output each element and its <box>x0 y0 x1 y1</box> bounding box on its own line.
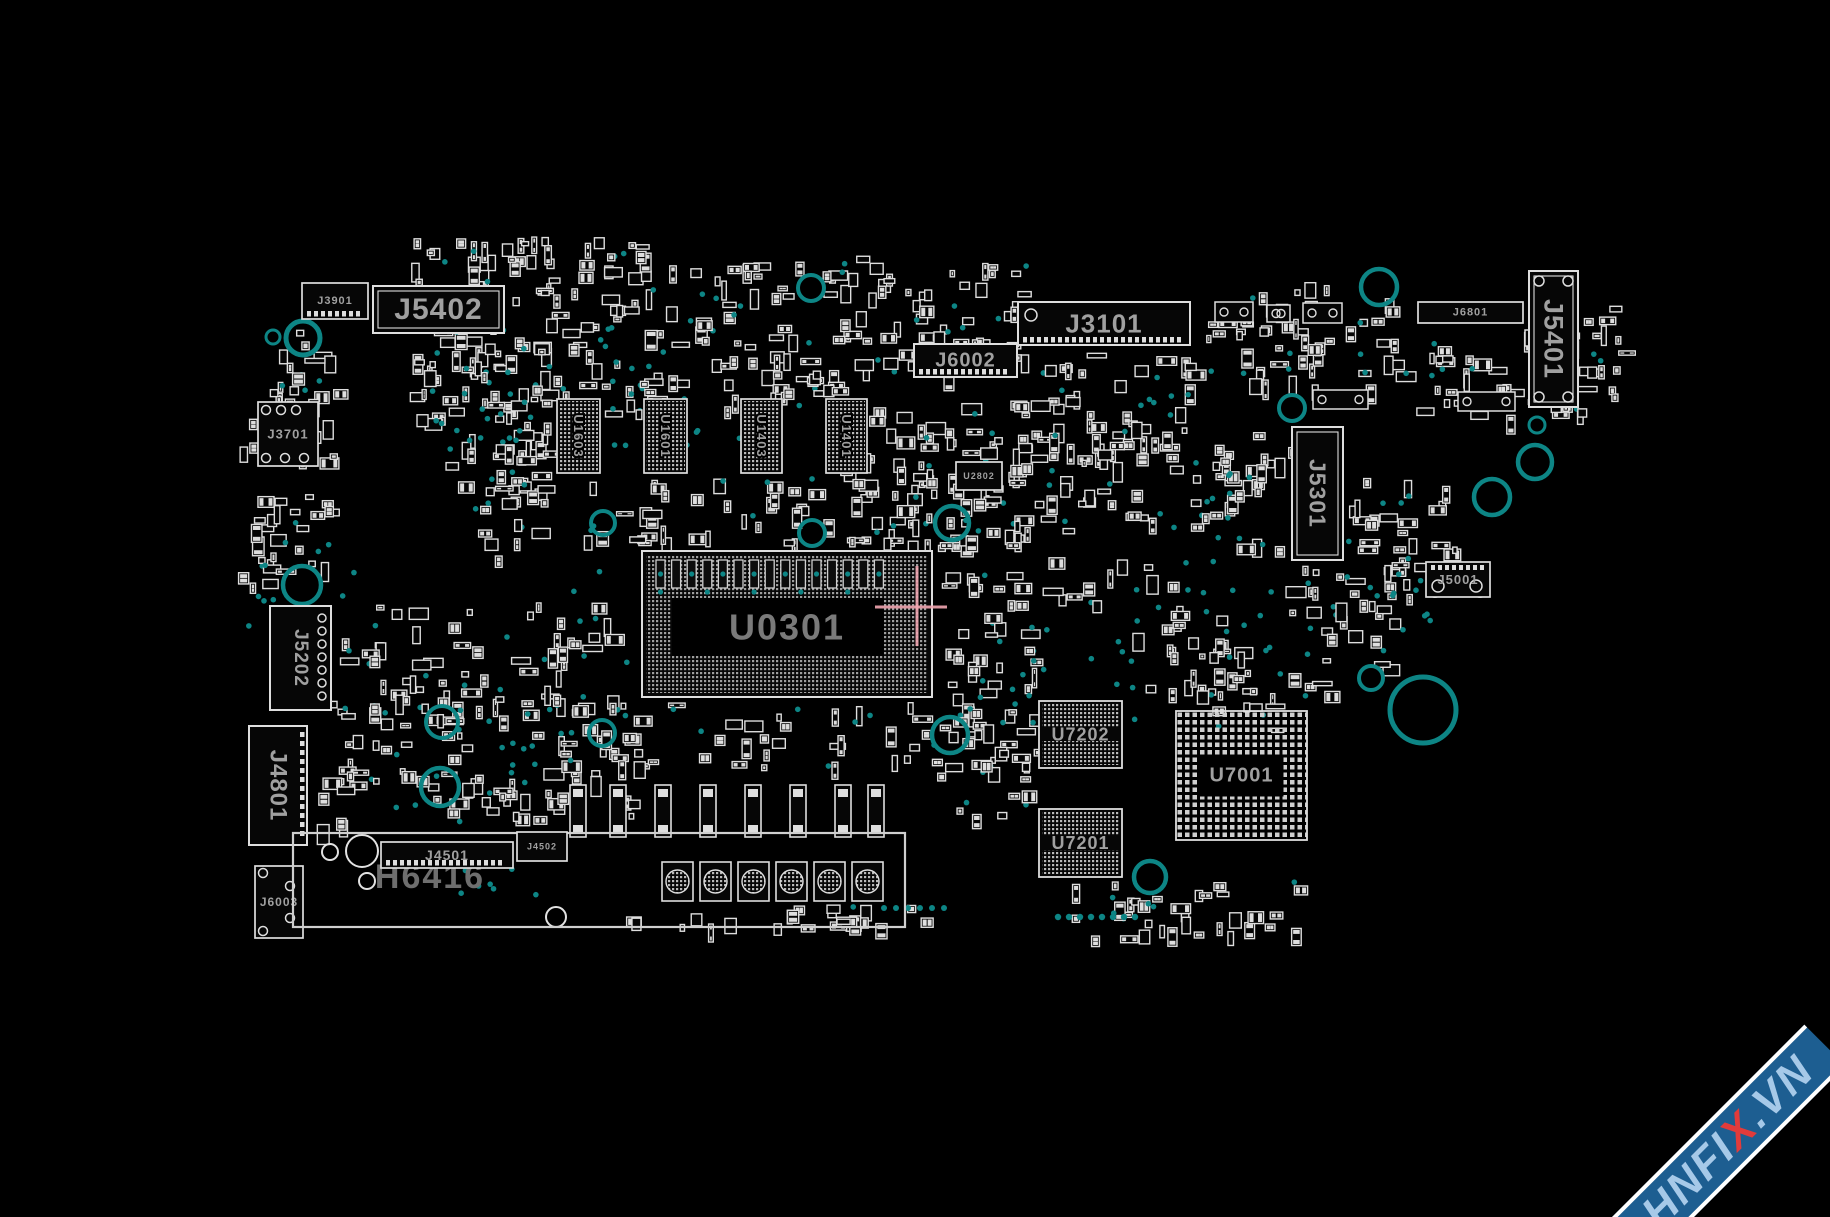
component-j5001[interactable]: J5001 <box>1426 562 1490 597</box>
component-u7201[interactable]: U7201 <box>1039 809 1122 877</box>
svg-text:U1601: U1601 <box>658 414 673 457</box>
boardview-stage: J3901J5402J3701U1603U1601U1403U1401J6002… <box>0 0 1830 1217</box>
component-u2802[interactable]: U2802 <box>956 462 1002 490</box>
svg-text:J6801: J6801 <box>1453 307 1489 319</box>
svg-text:U2802: U2802 <box>963 471 995 481</box>
svg-text:U1603: U1603 <box>571 414 586 457</box>
svg-text:J3901: J3901 <box>317 295 353 307</box>
component-j5401[interactable]: J5401 <box>1529 271 1578 407</box>
component-j5402[interactable]: J5402 <box>373 286 504 333</box>
component-j5202[interactable]: J5202 <box>270 606 331 710</box>
svg-text:U7001: U7001 <box>1210 765 1274 787</box>
svg-text:J5001: J5001 <box>1437 572 1478 587</box>
svg-text:J4502: J4502 <box>527 842 557 852</box>
board-diagram: J3901J5402J3701U1603U1601U1403U1401J6002… <box>0 0 1830 1217</box>
component-j3901[interactable]: J3901 <box>302 283 368 319</box>
svg-text:J3701: J3701 <box>267 427 308 442</box>
svg-text:J6002: J6002 <box>935 350 996 372</box>
component-j4801[interactable]: J4801 <box>249 726 307 845</box>
svg-text:U7202: U7202 <box>1051 725 1109 745</box>
component-u1401[interactable]: U1401 <box>826 399 867 473</box>
component-u7202[interactable]: U7202 <box>1039 701 1122 768</box>
svg-text:J4501: J4501 <box>425 847 469 863</box>
svg-text:J5402: J5402 <box>394 293 482 326</box>
svg-text:J5401: J5401 <box>1539 299 1569 379</box>
svg-text:U1401: U1401 <box>839 414 854 457</box>
component-j4501[interactable]: J4501 <box>381 842 513 868</box>
component-j6002[interactable]: J6002 <box>914 344 1017 377</box>
svg-text:J5202: J5202 <box>290 629 311 687</box>
svg-text:U7201: U7201 <box>1051 833 1109 853</box>
svg-text:U0301: U0301 <box>729 607 845 648</box>
svg-text:J3101: J3101 <box>1065 309 1142 339</box>
component-j3701[interactable]: J3701 <box>258 402 318 466</box>
svg-text:J5301: J5301 <box>1305 459 1331 528</box>
svg-text:U1403: U1403 <box>754 414 769 457</box>
component-u0301[interactable]: U0301 <box>642 551 932 697</box>
component-j3101[interactable]: J3101 <box>1018 302 1190 345</box>
component-u1403[interactable]: U1403 <box>741 399 782 473</box>
component-j6801[interactable]: J6801 <box>1418 302 1523 323</box>
component-u7001[interactable]: U7001 <box>1176 711 1307 840</box>
component-u1603[interactable]: U1603 <box>557 399 600 473</box>
svg-text:J4801: J4801 <box>265 750 292 822</box>
component-u1601[interactable]: U1601 <box>644 399 687 473</box>
component-j5301[interactable]: J5301 <box>1292 427 1343 560</box>
component-j4502[interactable]: J4502 <box>517 832 567 861</box>
